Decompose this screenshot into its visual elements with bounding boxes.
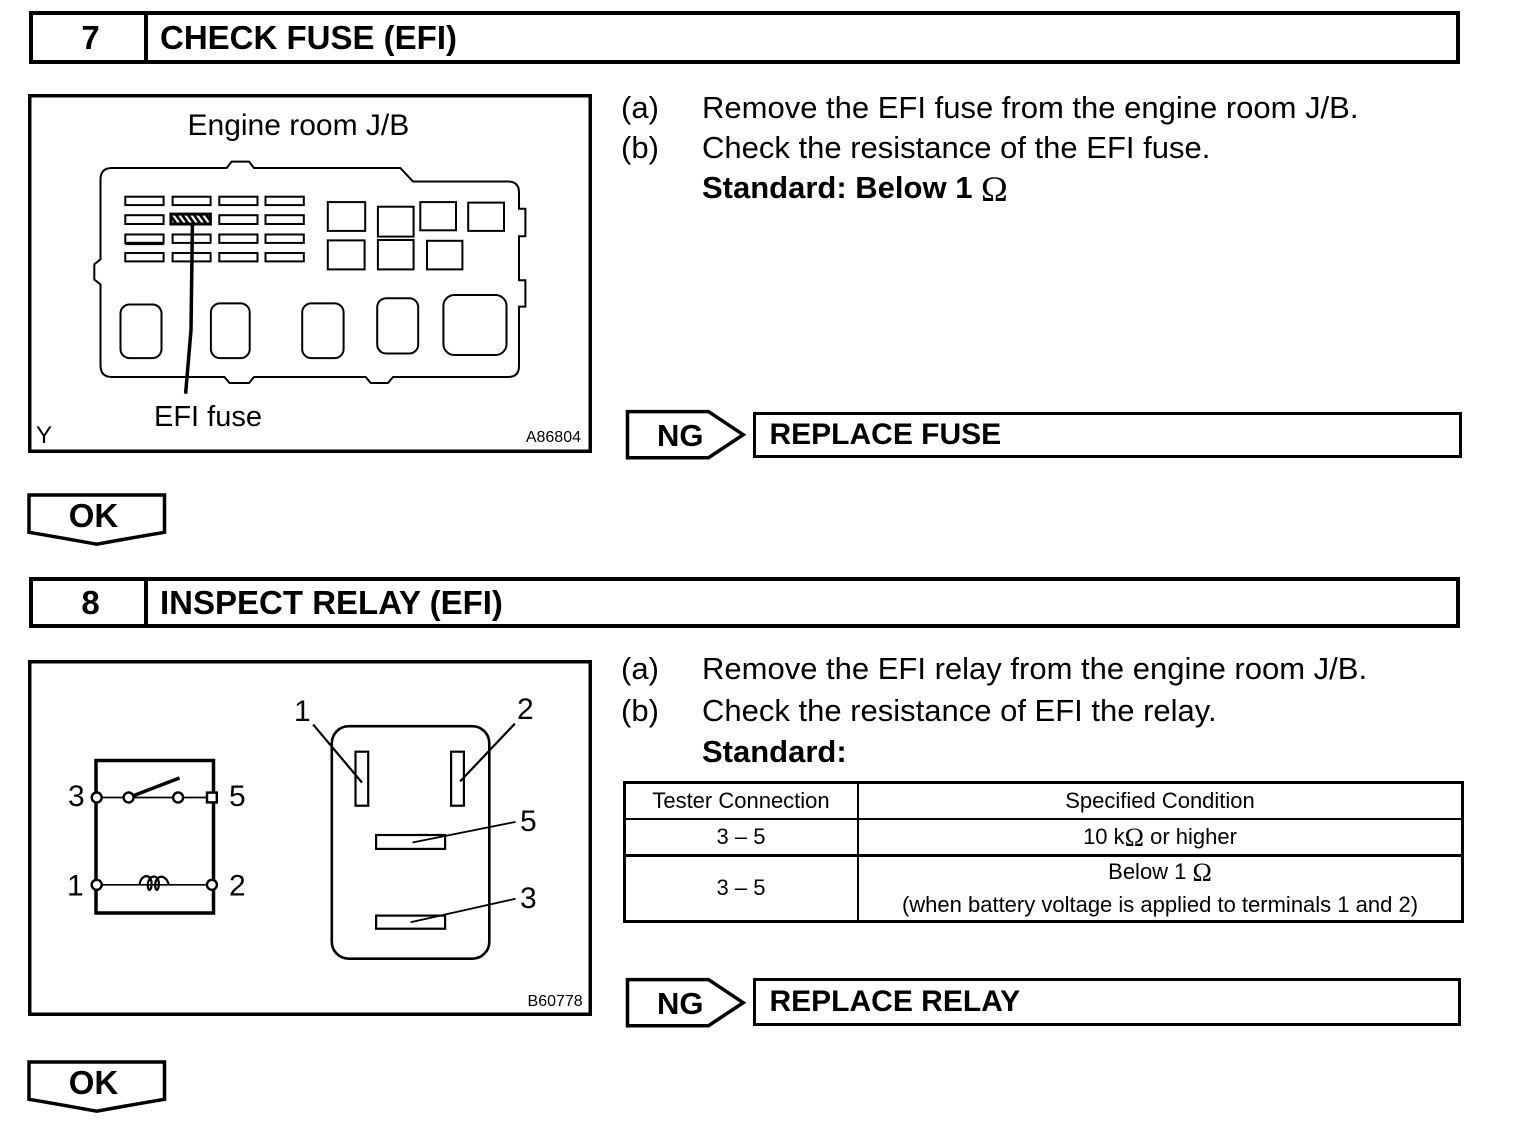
svg-text:5: 5 xyxy=(229,780,246,813)
svg-text:NG: NG xyxy=(657,418,704,453)
svg-text:5: 5 xyxy=(520,805,537,838)
svg-text:3: 3 xyxy=(520,882,537,915)
svg-text:2: 2 xyxy=(229,870,246,903)
svg-text:3: 3 xyxy=(68,780,85,813)
svg-text:NG: NG xyxy=(657,986,704,1021)
svg-text:EFI fuse: EFI fuse xyxy=(154,401,262,433)
svg-text:Y: Y xyxy=(36,422,52,449)
svg-text:2: 2 xyxy=(517,693,534,726)
svg-text:1: 1 xyxy=(67,870,84,903)
svg-text:1: 1 xyxy=(294,695,311,728)
svg-text:A86804: A86804 xyxy=(526,429,581,446)
svg-text:OK: OK xyxy=(69,1064,119,1101)
svg-text:Engine room J/B: Engine room J/B xyxy=(188,109,410,142)
svg-text:B60778: B60778 xyxy=(528,993,583,1010)
svg-text:OK: OK xyxy=(69,497,119,534)
